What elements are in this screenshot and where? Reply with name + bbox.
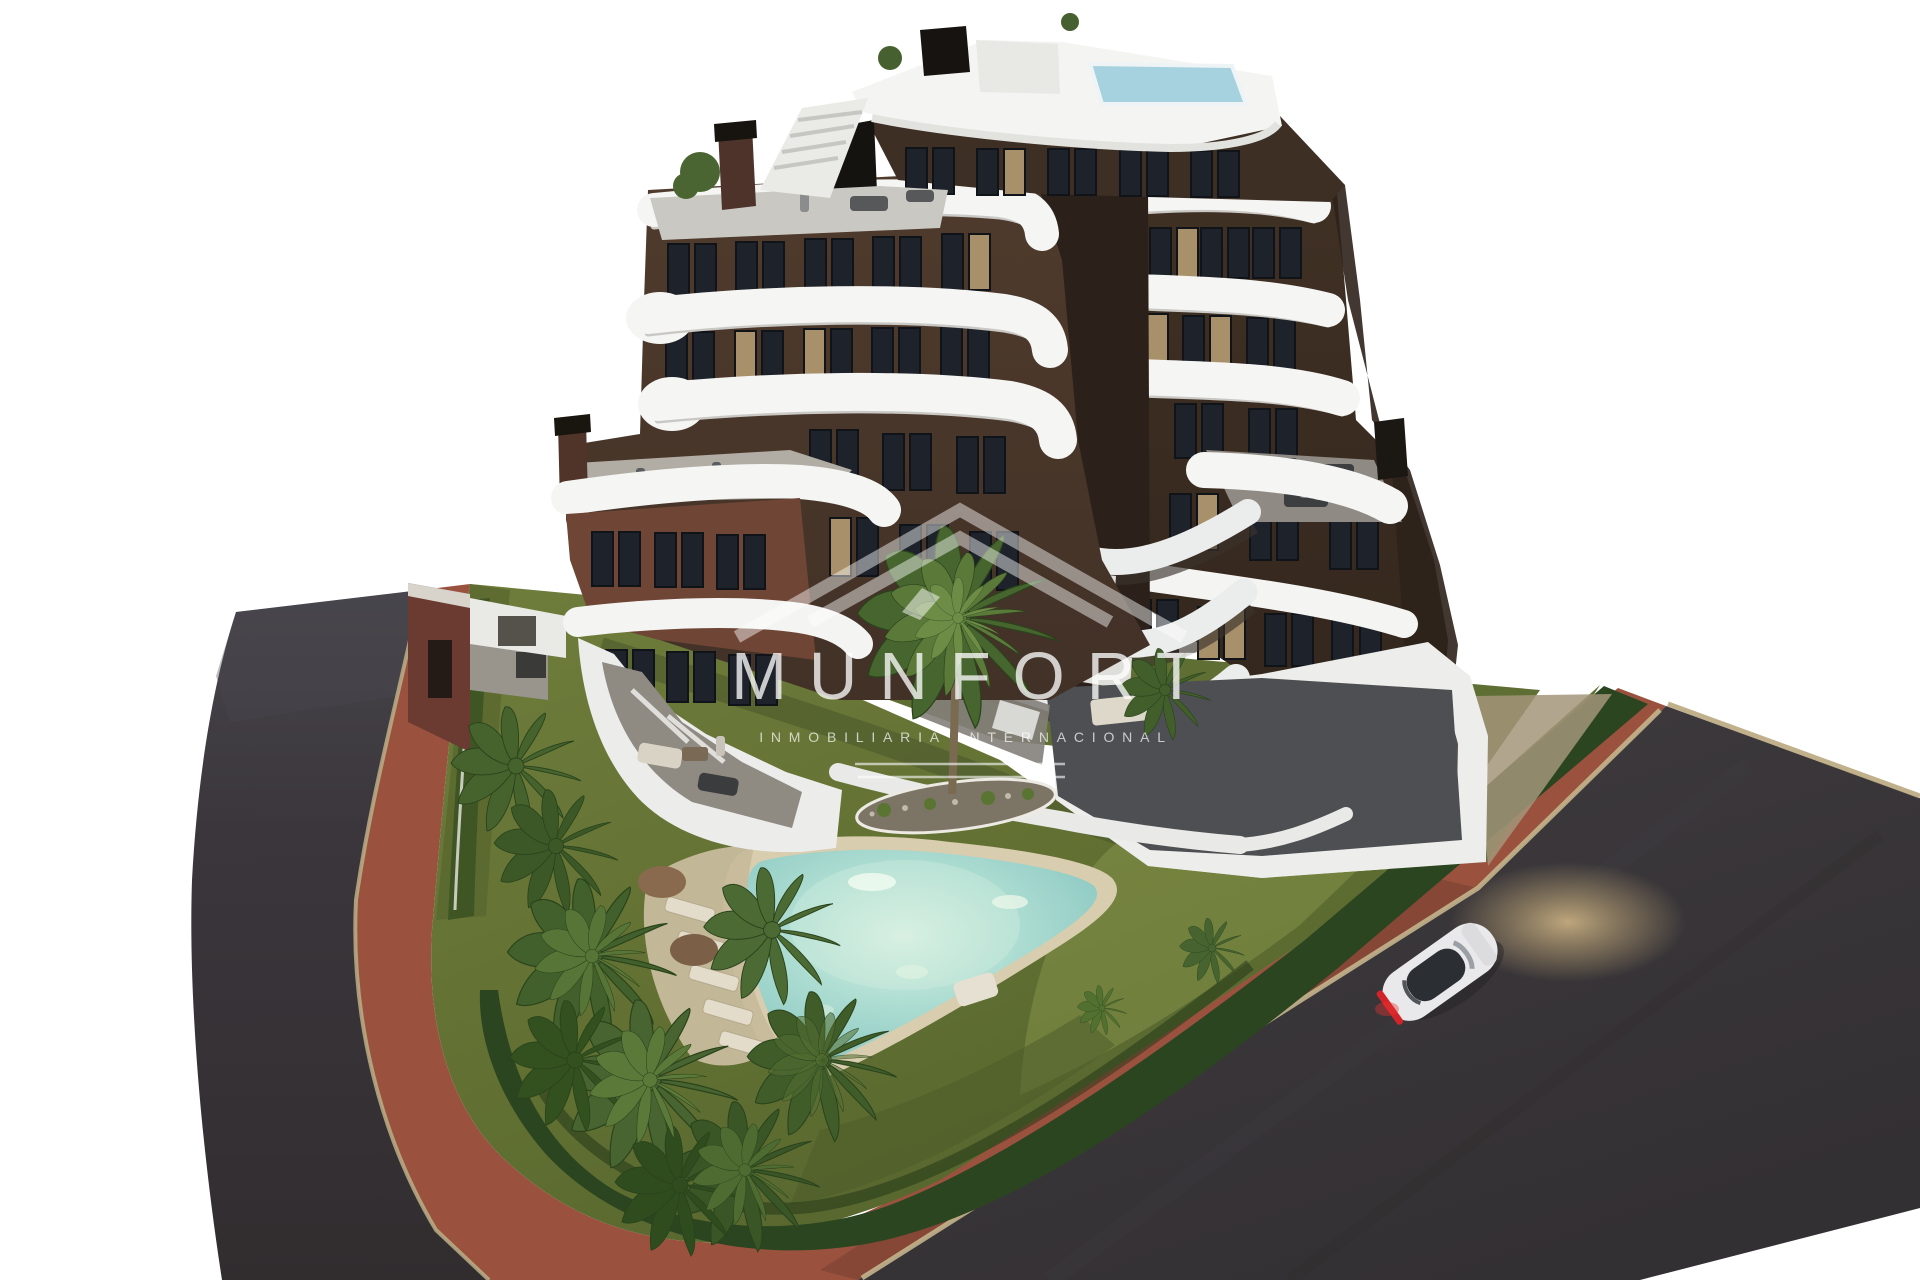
svg-text:INMOBILIARIA INTERNACIONAL: INMOBILIARIA INTERNACIONAL <box>759 729 1173 745</box>
svg-text:MUNFORT: MUNFORT <box>731 639 1219 714</box>
